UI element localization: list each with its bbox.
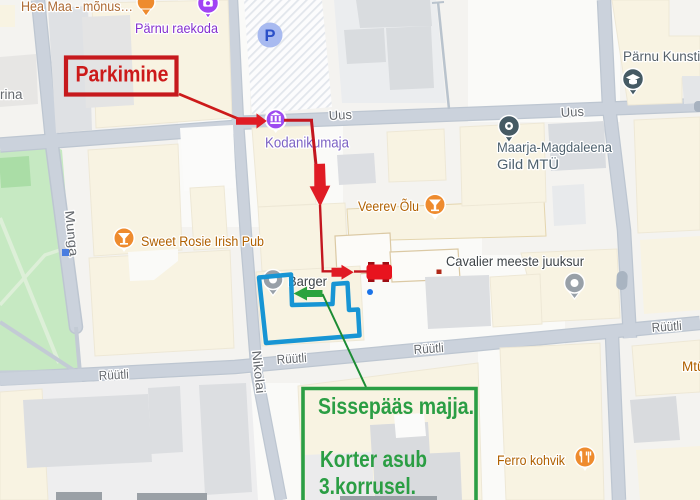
svg-text:Barger: Barger [288, 273, 327, 289]
svg-text:Rüütli: Rüütli [413, 340, 444, 357]
svg-text:Rüütli: Rüütli [276, 350, 307, 367]
svg-text:Parkimine: Parkimine [76, 62, 169, 87]
svg-text:P: P [264, 27, 275, 45]
svg-text:Veerev Õlu: Veerev Õlu [358, 199, 419, 214]
svg-text:Hea Maa - mõnus…: Hea Maa - mõnus… [21, 0, 133, 14]
svg-text:Uus: Uus [328, 107, 352, 123]
svg-text:Maarja-Magdaleena: Maarja-Magdaleena [497, 139, 612, 155]
svg-text:Gild MTÜ: Gild MTÜ [497, 155, 559, 172]
svg-text:Rüütli: Rüütli [651, 318, 682, 335]
svg-text:Ferro kohvik: Ferro kohvik [497, 453, 565, 468]
svg-text:Rüütli: Rüütli [98, 366, 129, 383]
svg-text:Uus: Uus [560, 104, 584, 120]
svg-text:rina: rina [0, 87, 23, 102]
svg-text:Pärnu raekoda: Pärnu raekoda [135, 20, 218, 36]
svg-text:Cavalier meeste juuksur: Cavalier meeste juuksur [446, 253, 584, 269]
svg-text:Sissepääs majja.: Sissepääs majja. [318, 393, 474, 419]
svg-text:Pärnu Kunstide k: Pärnu Kunstide k [623, 49, 700, 64]
svg-text:Mtü: Mtü [682, 359, 700, 374]
svg-text:Sweet Rosie Irish Pub: Sweet Rosie Irish Pub [141, 234, 264, 249]
svg-text:3.korrusel.: 3.korrusel. [319, 473, 416, 499]
svg-text:Korter asub: Korter asub [320, 446, 427, 472]
svg-text:Kodanikumaja: Kodanikumaja [265, 136, 350, 152]
